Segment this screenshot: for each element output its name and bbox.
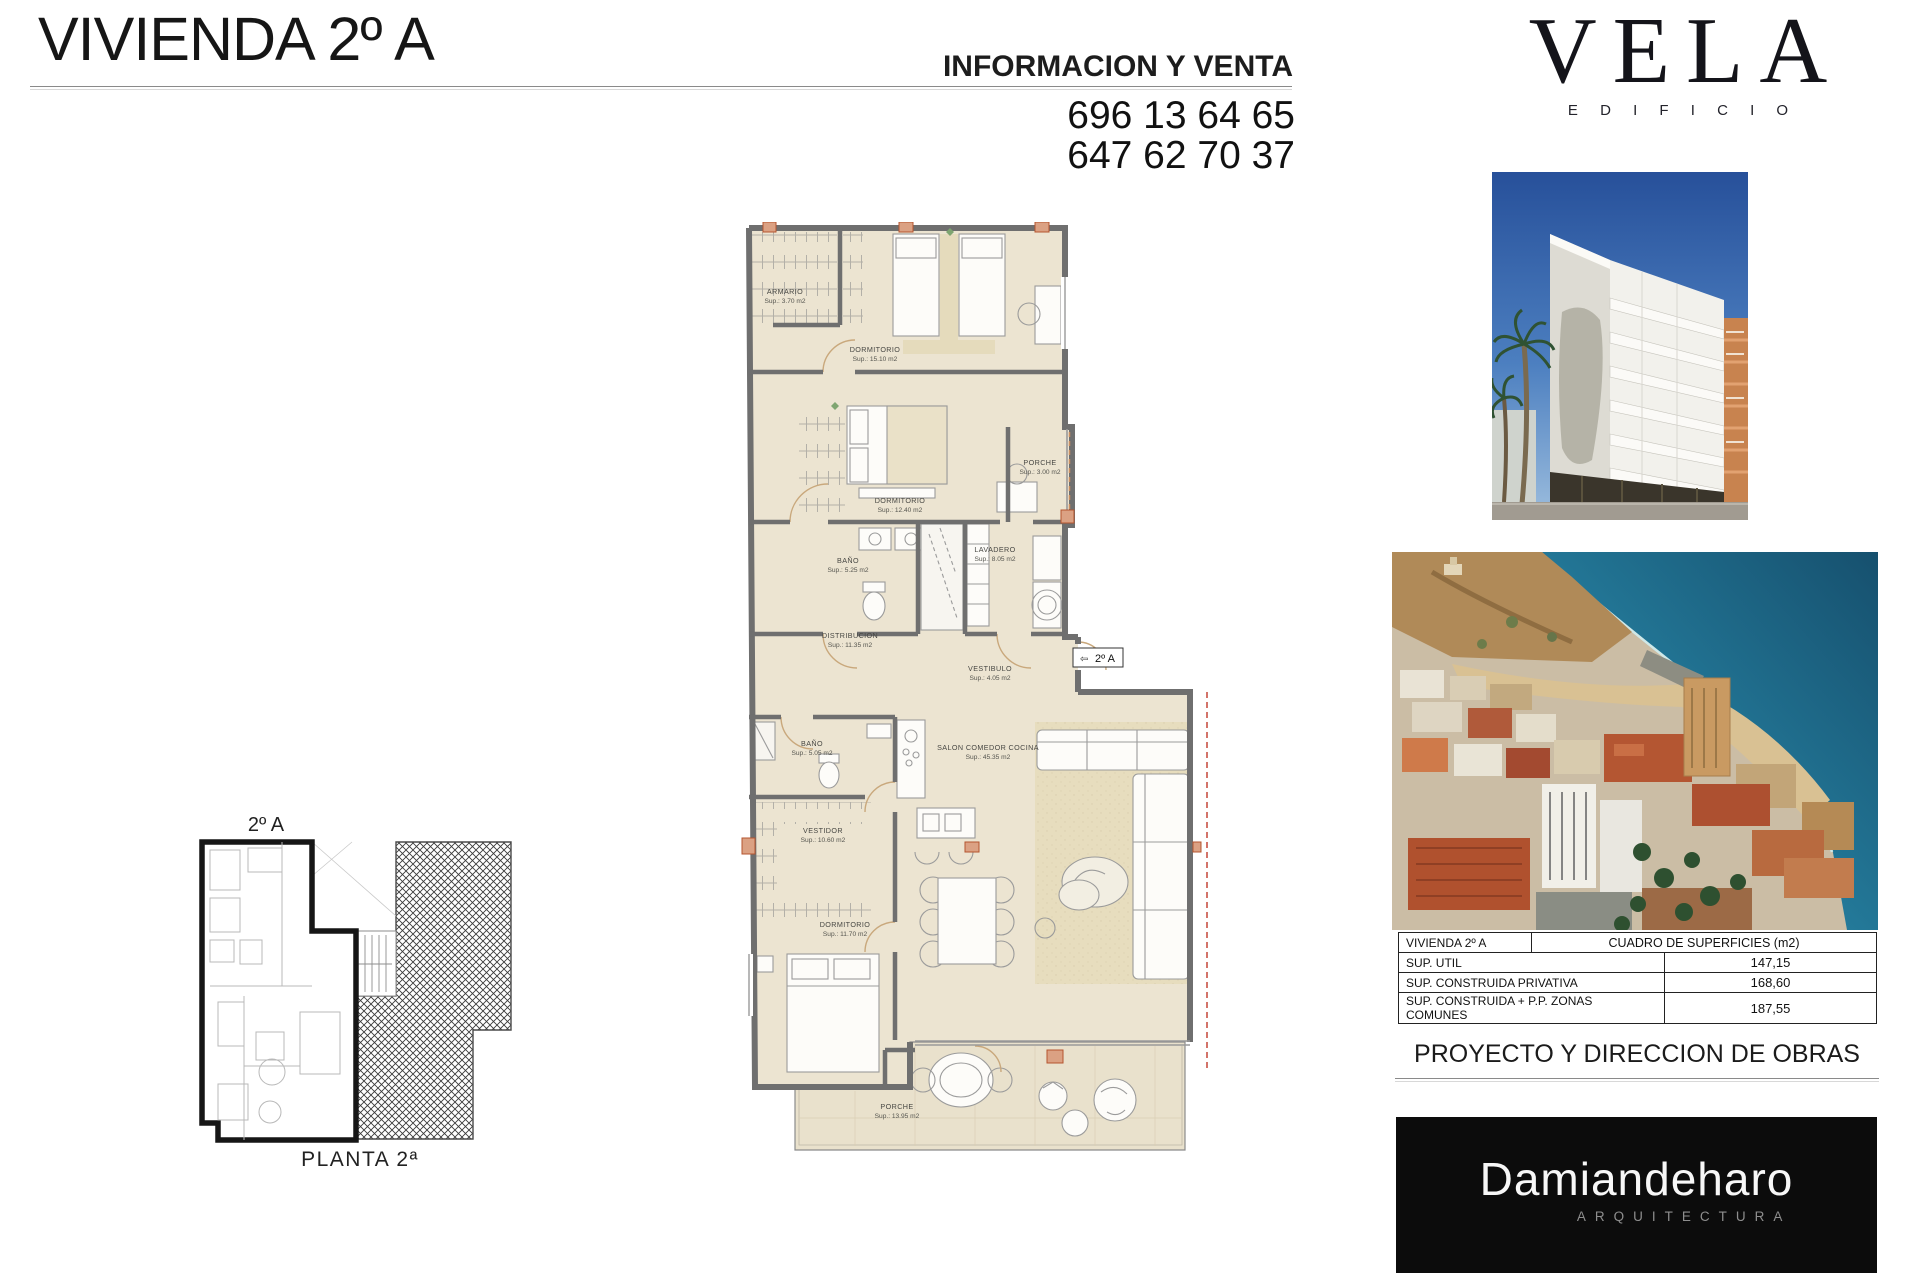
svg-text:Sup.: 8.05 m2: Sup.: 8.05 m2 [974,556,1015,563]
svg-text:Sup.: 15.10 m2: Sup.: 15.10 m2 [853,356,898,363]
project-rule [1395,1078,1879,1082]
header-rule [30,86,1292,90]
svg-text:Sup.: 5.25 m2: Sup.: 5.25 m2 [827,567,868,574]
row-label: SUP. CONSTRUIDA PRIVATIVA [1399,973,1665,993]
svg-text:DISTRIBUCION: DISTRIBUCION [822,631,878,640]
svg-text:Sup.: 11.35 m2: Sup.: 11.35 m2 [828,642,873,649]
phone-number-2: 647 62 70 37 [895,134,1295,178]
floor-plan: ⇦ 2º A ARMARIOSup.: 3.70 m2 DORMITORIOSu… [735,222,1217,1167]
svg-text:LAVADERO: LAVADERO [974,545,1015,554]
info-venta-label: INFORMACION Y VENTA [895,50,1293,84]
surfaces-table: VIVIENDA 2º A CUADRO DE SUPERFICIES (m2)… [1398,932,1877,1024]
table-header-row: VIVIENDA 2º A CUADRO DE SUPERFICIES (m2) [1399,933,1877,953]
svg-text:Sup.: 10.60 m2: Sup.: 10.60 m2 [801,837,846,844]
svg-text:VESTIBULO: VESTIBULO [968,664,1012,673]
vela-logo: VELA E D I F I C I O [1478,2,1878,119]
page-title: VIVIENDA 2º A [38,4,434,74]
svg-text:BAÑO: BAÑO [801,739,823,748]
svg-text:PORCHE: PORCHE [880,1102,913,1111]
table-title-cell: CUADRO DE SUPERFICIES (m2) [1532,933,1877,953]
svg-text:Sup.: 12.40 m2: Sup.: 12.40 m2 [878,507,923,514]
project-heading: PROYECTO Y DIRECCION DE OBRAS [1398,1040,1876,1069]
table-row: SUP. UTIL 147,15 [1399,953,1877,973]
svg-text:Sup.: 3.70 m2: Sup.: 3.70 m2 [764,298,805,305]
table-row: SUP. CONSTRUIDA + P.P. ZONAS COMUNES 187… [1399,993,1877,1024]
svg-text:DORMITORIO: DORMITORIO [850,345,901,354]
key-plan-unit-label: 2º A [236,814,296,837]
svg-text:SALON COMEDOR COCINA: SALON COMEDOR COCINA [937,743,1039,752]
svg-text:PORCHE: PORCHE [1023,458,1056,467]
svg-text:ARMARIO: ARMARIO [767,287,803,296]
svg-text:Sup.: 5.05 m2: Sup.: 5.05 m2 [791,750,832,757]
svg-text:Sup.: 3.00 m2: Sup.: 3.00 m2 [1019,469,1060,476]
vela-logo-subtitle: E D I F I C I O [1478,102,1878,119]
svg-text:Sup.: 13.95 m2: Sup.: 13.95 m2 [875,1113,920,1120]
key-plan-unit-a [202,842,356,1140]
svg-text:DORMITORIO: DORMITORIO [820,920,871,929]
svg-text:DORMITORIO: DORMITORIO [875,496,926,505]
unit-arrow-icon: ⇦ [1080,654,1088,665]
svg-text:Sup.: 45.35 m2: Sup.: 45.35 m2 [966,754,1011,761]
svg-text:Sup.: 4.05 m2: Sup.: 4.05 m2 [969,675,1010,682]
vela-logo-name: VELA [1478,2,1878,101]
architect-subtitle: ARQUITECTURA [1480,1209,1794,1224]
unit-tag: ⇦ 2º A [1073,648,1123,667]
table-unit-cell: VIVIENDA 2º A [1399,933,1532,953]
key-plan [196,836,516,1146]
architect-logo: Damiandeharo ARQUITECTURA [1396,1117,1877,1273]
svg-text:VESTIDOR: VESTIDOR [803,826,843,835]
aerial-photo [1392,552,1878,930]
brochure-page: VIVIENDA 2º A INFORMACION Y VENTA 696 13… [0,0,1920,1280]
architect-logo-inner: Damiandeharo ARQUITECTURA [1480,1152,1794,1224]
row-value: 168,60 [1665,973,1877,993]
table-row: SUP. CONSTRUIDA PRIVATIVA 168,60 [1399,973,1877,993]
svg-text:Sup.: 11.70 m2: Sup.: 11.70 m2 [823,931,868,938]
unit-tag-label: 2º A [1095,653,1116,665]
architect-name: Damiandeharo [1480,1152,1794,1206]
row-value: 147,15 [1665,953,1877,973]
distant-building [1492,410,1536,504]
building-photo [1492,172,1748,520]
key-plan-caption: PLANTA 2ª [290,1148,430,1172]
svg-text:BAÑO: BAÑO [837,556,859,565]
row-label: SUP. UTIL [1399,953,1665,973]
row-label: SUP. CONSTRUIDA + P.P. ZONAS COMUNES [1399,993,1665,1024]
orange-building [1724,318,1748,504]
phone-number-1: 696 13 64 65 [895,94,1295,138]
row-value: 187,55 [1665,993,1877,1024]
